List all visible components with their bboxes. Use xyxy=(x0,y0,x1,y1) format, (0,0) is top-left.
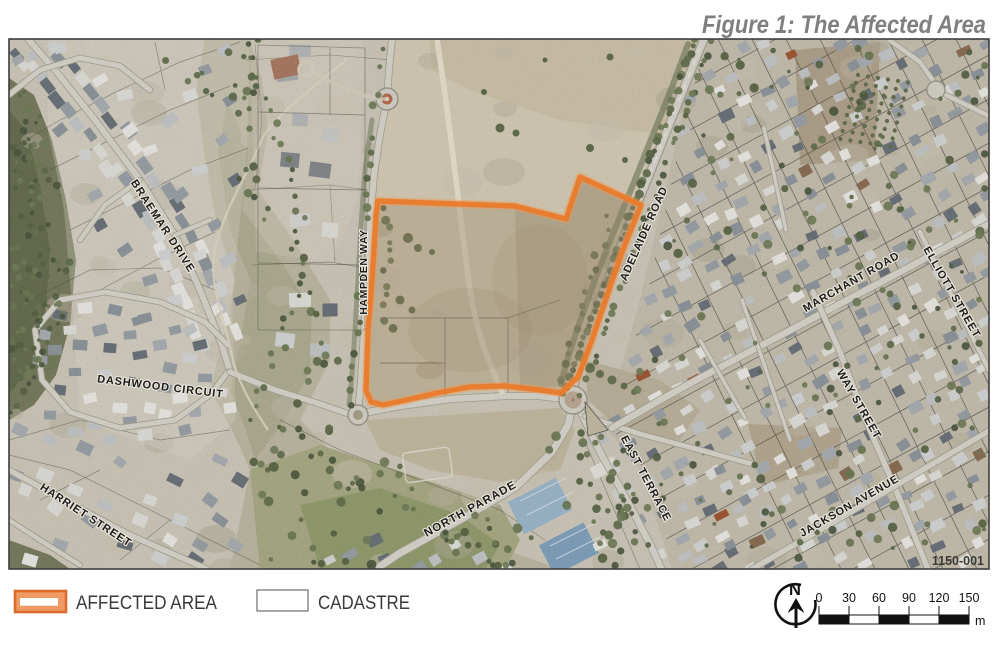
svg-text:N: N xyxy=(789,581,801,599)
svg-text:m: m xyxy=(975,614,985,628)
svg-text:0: 0 xyxy=(816,591,823,605)
svg-text:60: 60 xyxy=(872,591,886,605)
svg-text:90: 90 xyxy=(902,591,916,605)
svg-text:AFFECTED AREA: AFFECTED AREA xyxy=(76,592,217,614)
svg-text:CADASTRE: CADASTRE xyxy=(318,592,410,614)
svg-text:Figure 1: The Affected Area: Figure 1: The Affected Area xyxy=(702,11,986,39)
svg-text:30: 30 xyxy=(842,591,856,605)
svg-text:1150-001: 1150-001 xyxy=(932,554,984,568)
svg-text:HAMPDEN WAY: HAMPDEN WAY xyxy=(358,229,370,315)
svg-text:120: 120 xyxy=(929,591,950,605)
svg-text:150: 150 xyxy=(959,591,980,605)
